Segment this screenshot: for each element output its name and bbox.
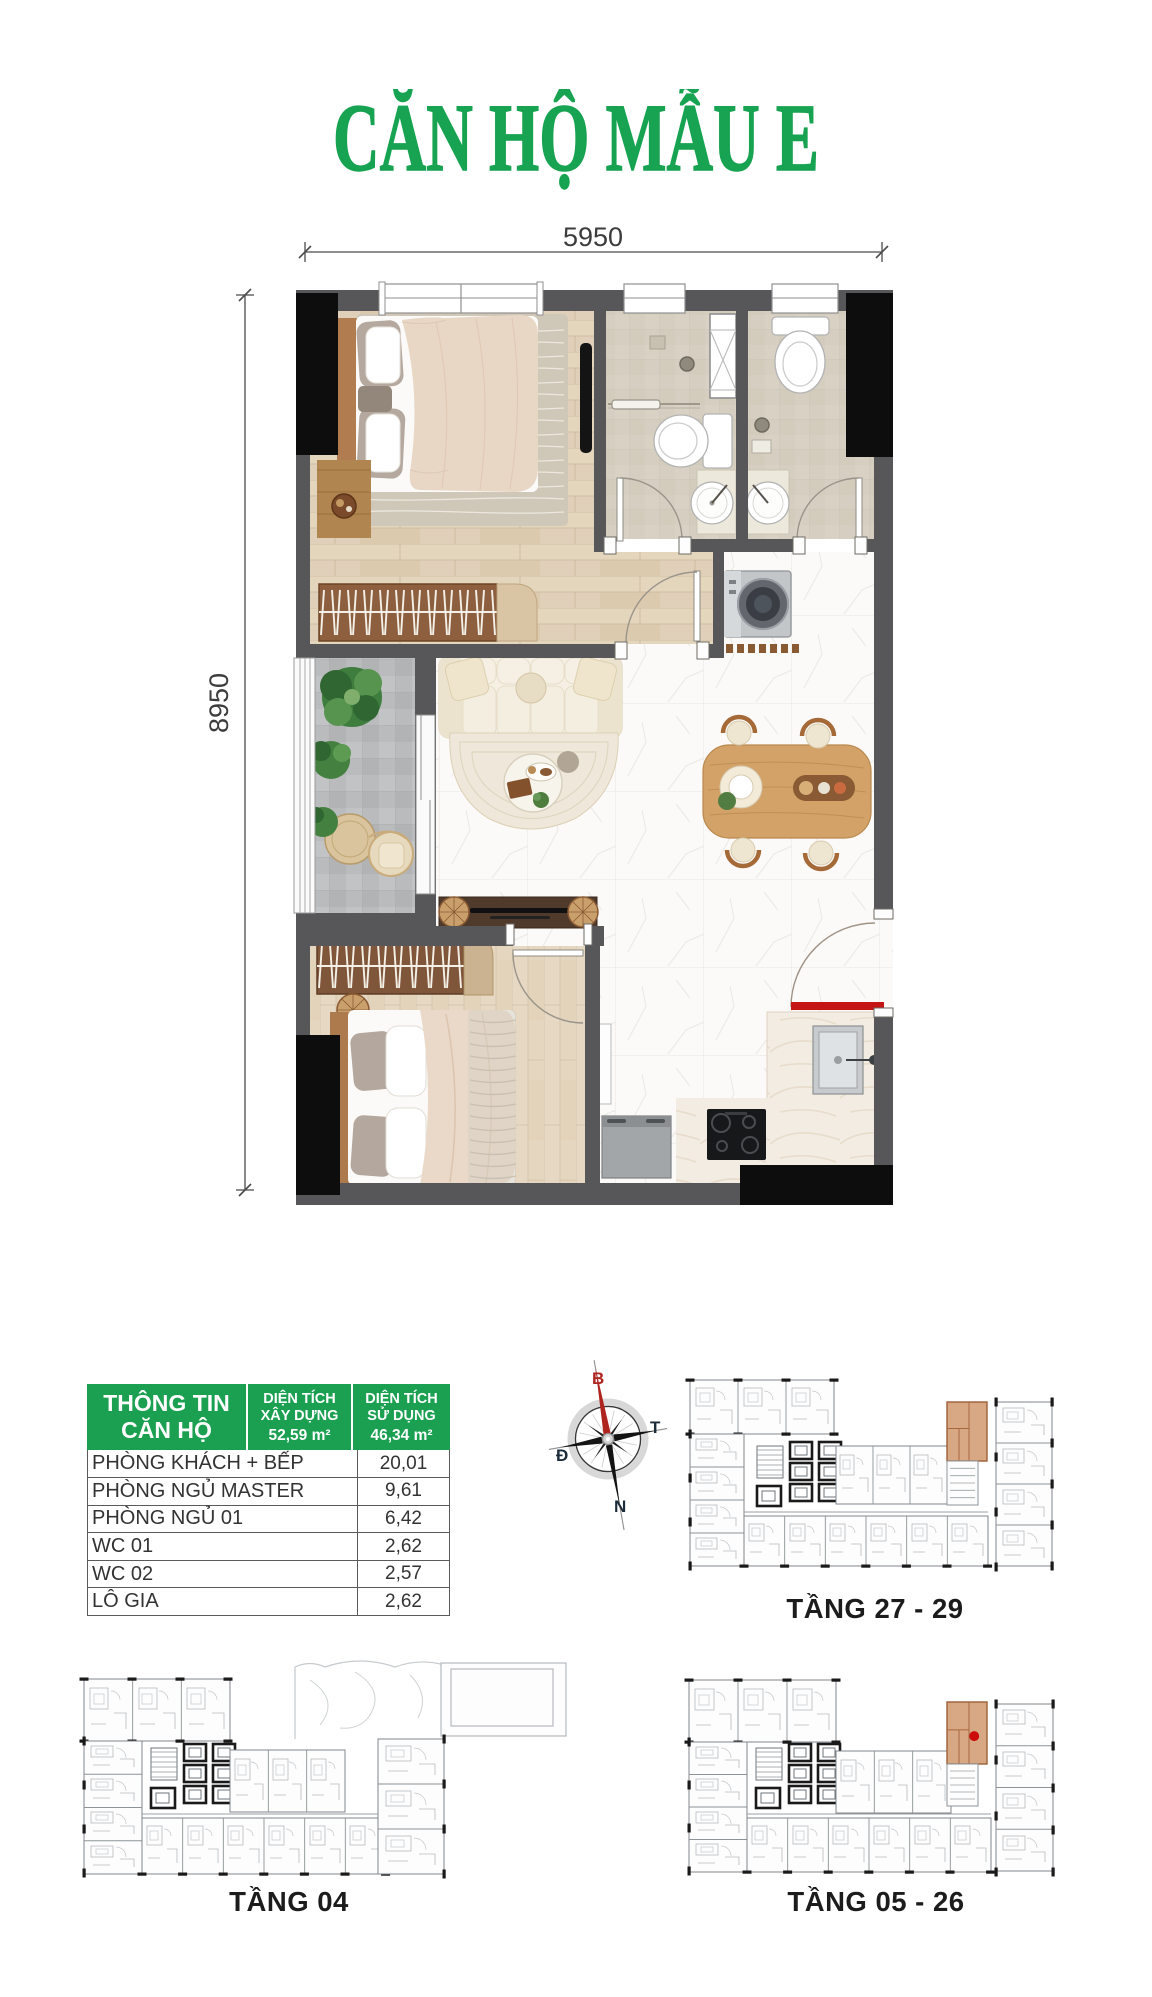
svg-text:TẦNG 27 - 29: TẦNG 27 - 29 bbox=[786, 1593, 963, 1624]
svg-text:TẦNG 04: TẦNG 04 bbox=[229, 1886, 349, 1917]
svg-text:TẦNG 05 - 26: TẦNG 05 - 26 bbox=[787, 1886, 964, 1917]
